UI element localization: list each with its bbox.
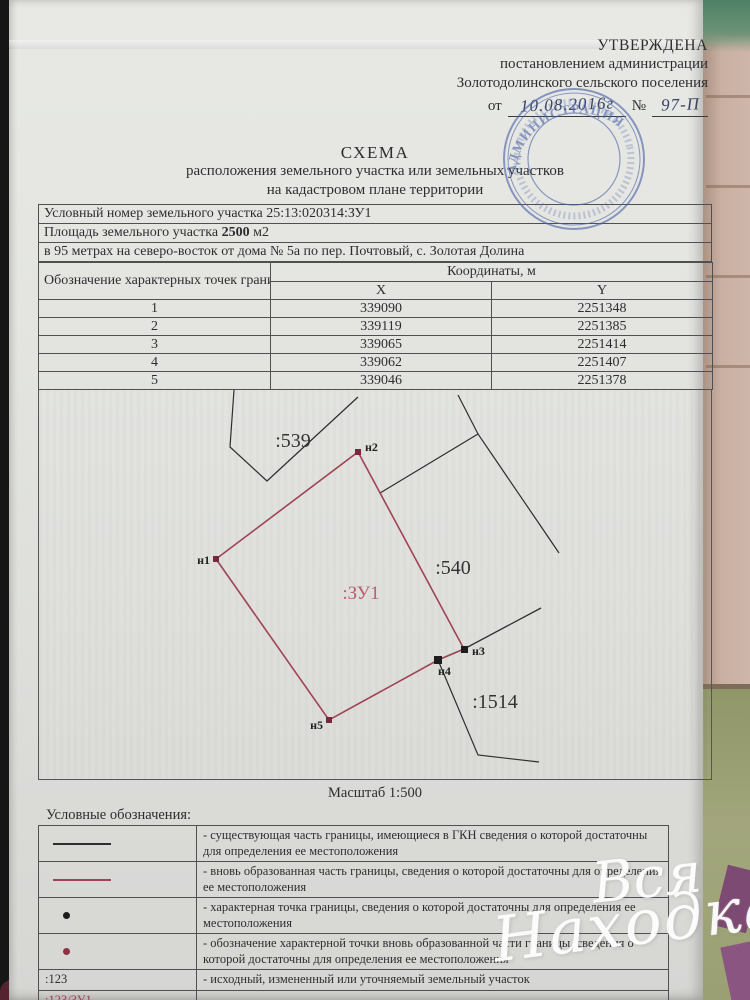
legend-text-cell: - обозначение характерной точки вновь об… bbox=[197, 934, 669, 970]
points-column-header: Обозначение характерных точек границ bbox=[39, 263, 271, 300]
legend-row: - обозначение характерной точки вновь об… bbox=[39, 934, 669, 970]
legend-row: - существующая часть границы, имеющиеся … bbox=[39, 826, 669, 862]
legend-symbol-cell: :123/ЗУ1 :ЗУ1 bbox=[39, 990, 197, 1000]
boundary-point-n2 bbox=[355, 449, 361, 455]
x-header: X bbox=[271, 282, 492, 300]
scale-label: Масштаб 1:500 bbox=[38, 785, 712, 802]
new-parcel-label: :ЗУ1 bbox=[342, 583, 379, 604]
point-label-n2: н2 bbox=[365, 440, 378, 454]
legend-row: - вновь образованная часть границы, свед… bbox=[39, 862, 669, 898]
legend-row: :123 - исходный, измененный или уточняем… bbox=[39, 970, 669, 991]
legend-text-cell: - вновь образованная часть границы, свед… bbox=[197, 862, 669, 898]
table-row: 1 339090 2251348 bbox=[39, 300, 713, 318]
legend-text-cell: - существующая часть границы, имеющиеся … bbox=[197, 826, 669, 862]
legend-symbol-cell bbox=[39, 934, 197, 970]
table-header-row: Обозначение характерных точек границ Коо… bbox=[39, 263, 713, 282]
photo-of-document: УТВЕРЖДЕНА постановлением администрации … bbox=[0, 0, 750, 1000]
existing-boundary-540-1514 bbox=[438, 608, 541, 660]
legend-symbol-cell bbox=[39, 898, 197, 934]
existing-point-symbol bbox=[63, 912, 70, 919]
handwritten-number: 97-П bbox=[652, 95, 708, 117]
cadastral-plan: н1 н2 н3 н4 н5 :539 :540 :1514 :ЗУ1 bbox=[38, 390, 712, 780]
parcel-location-cell: в 95 метрах на северо-восток от дома № 5… bbox=[39, 243, 712, 262]
plan-drawing: н1 н2 н3 н4 н5 :539 :540 :1514 :ЗУ1 bbox=[39, 390, 711, 779]
approval-line: УТВЕРЖДЕНА bbox=[38, 36, 708, 55]
boundary-point-n4 bbox=[434, 656, 442, 664]
new-boundary-symbol bbox=[53, 879, 111, 881]
table-row: 3 339065 2251414 bbox=[39, 336, 713, 354]
point-label-n1: н1 bbox=[197, 553, 210, 567]
point-label-n5: н5 bbox=[310, 718, 323, 732]
approval-line: постановлением администрации bbox=[38, 55, 708, 74]
existing-boundary-540 bbox=[458, 395, 559, 553]
existing-boundary-symbol bbox=[53, 843, 111, 845]
legend-text-cell: - характерная точка границы, сведения о … bbox=[197, 898, 669, 934]
legend-table: - существующая часть границы, имеющиеся … bbox=[38, 825, 669, 1000]
table-row: в 95 метрах на северо-восток от дома № 5… bbox=[39, 243, 712, 262]
photo-left-edge bbox=[0, 0, 9, 1000]
new-point-symbol bbox=[63, 948, 70, 955]
legend-symbol-cell: :123 bbox=[39, 970, 197, 991]
parcel-label-1514: :1514 bbox=[472, 691, 518, 713]
coordinates-table: Обозначение характерных точек границ Коо… bbox=[38, 262, 713, 390]
legend-header: Условные обозначения: bbox=[38, 807, 712, 824]
boundary-point-n1 bbox=[213, 556, 219, 562]
legend-row: :123/ЗУ1 :ЗУ1 - вновь образованный земел… bbox=[39, 990, 669, 1000]
table-row: 5 339046 2251378 bbox=[39, 372, 713, 390]
wall-slat-line bbox=[706, 95, 750, 98]
boundary-point-n3 bbox=[461, 646, 468, 653]
table-row: 4 339062 2251407 bbox=[39, 354, 713, 372]
parcel-label-539: :539 bbox=[275, 430, 311, 452]
new-parcel-boundary bbox=[216, 452, 464, 720]
legend-symbol-cell bbox=[39, 826, 197, 862]
legend-text-cell: - исходный, измененный или уточняемый зе… bbox=[197, 970, 669, 991]
boundary-point-n5 bbox=[326, 717, 332, 723]
parcel-label-540: :540 bbox=[435, 557, 471, 579]
table-row: 2 339119 2251385 bbox=[39, 318, 713, 336]
point-label-n3: н3 bbox=[472, 644, 485, 658]
wall-slat-line bbox=[706, 185, 750, 188]
coordinates-column-header: Координаты, м bbox=[271, 263, 713, 282]
legend-row: - характерная точка границы, сведения о … bbox=[39, 898, 669, 934]
legend-text-cell: - вновь образованный земельный участок bbox=[197, 990, 669, 1000]
existing-boundary-junction bbox=[380, 434, 478, 493]
point-label-n4: н4 bbox=[438, 664, 451, 678]
legend-symbol-cell bbox=[39, 862, 197, 898]
y-header: Y bbox=[492, 282, 713, 300]
